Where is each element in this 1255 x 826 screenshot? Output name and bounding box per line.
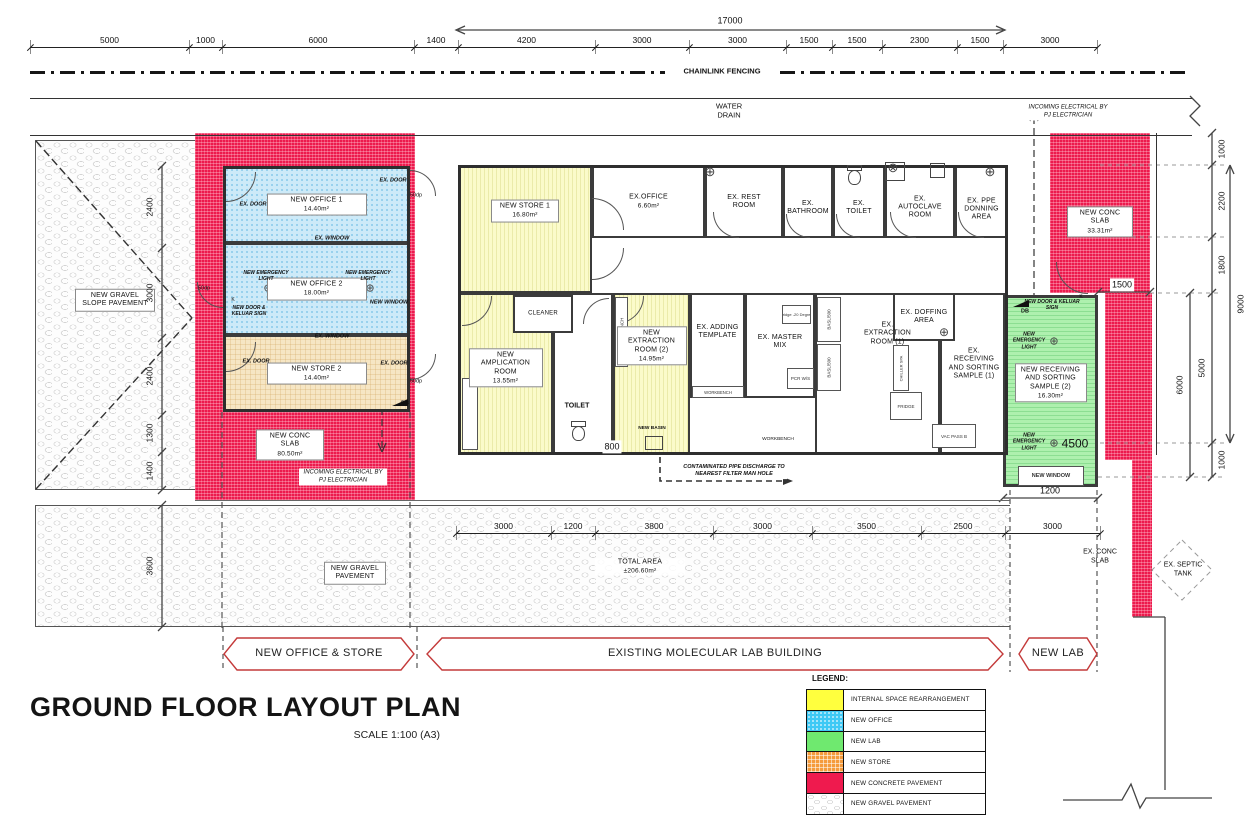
label-k: K [231, 297, 234, 303]
room-new-store1 [458, 165, 592, 293]
legend-swatch-lab [807, 732, 844, 752]
label-contaminated: CONTAMINATED PIPE DISCHARGE TO NEAREST F… [681, 463, 787, 479]
room-label-ex-receiving1: EX. RECEIVING AND SORTING SAMPLE (1) [947, 348, 1001, 381]
toilet-tank [847, 165, 862, 171]
furniture-label: BASL/500 [826, 309, 831, 329]
legend-title: LEGEND: [812, 674, 848, 684]
area-value: 80.50m² [261, 450, 319, 458]
label-ex_door: EX. DOOR [240, 202, 267, 209]
label-ex_door: EX. DOOR [380, 178, 407, 185]
label-4: 1000 [1217, 451, 1228, 470]
furniture-box [462, 378, 478, 450]
room-ex-adding-template [690, 293, 745, 398]
room-label-ex-bathroom: EX. BATHROOM [784, 199, 832, 216]
room-name: EX. TOILET [841, 199, 877, 216]
furniture-box: VAC PASS B [932, 424, 976, 448]
label-ex_window: EX. WINDOW [315, 334, 350, 341]
furniture-box: NEW WINDOW [1018, 466, 1084, 486]
furniture-label: BASL/500 [826, 357, 831, 377]
sink-icon: ⊕ [939, 325, 949, 339]
dim-top-value: 3000 [1041, 35, 1060, 45]
dim-top-value: 1400 [427, 35, 446, 45]
label-ex_door: EX. DOOR [381, 361, 408, 368]
room-label-ex-ppe-donning: EX. PPE DONNING AREA [960, 197, 1004, 222]
label-2: 2400 [145, 367, 156, 386]
label-water_drain: WATER DRAIN [709, 102, 749, 121]
dim-bottom-value: 3800 [643, 521, 666, 531]
room-name: CLEANER [518, 310, 568, 317]
dim-top-value: 4200 [517, 35, 536, 45]
label-4: 1400 [145, 462, 156, 481]
room-name: EX.OFFICE [614, 193, 684, 201]
legend: INTERNAL SPACE REARRANGEMENTNEW OFFICENE… [806, 689, 986, 815]
legend-label: NEW OFFICE [844, 711, 985, 731]
label-ex_window: EX. WINDOW [315, 236, 350, 243]
room-name: EX. REST ROOM [725, 193, 763, 210]
room-label-new-amplication: NEW AMPLICATION ROOM13.55m² [469, 348, 543, 387]
label-db: DB [401, 401, 409, 408]
label-new_emergency_light: NEW EMERGENCY LIGHT [1008, 433, 1050, 452]
furniture-label: Fridge -20 Degree [782, 312, 811, 317]
room-label-new-store2: NEW STORE 214.40m² [267, 362, 367, 385]
label-workbench: WORKBENCH [762, 437, 794, 443]
furniture-label: WORKBENCH [704, 390, 732, 395]
dim-bottom-value: 3000 [492, 521, 515, 531]
dim-top-value: 2300 [910, 35, 929, 45]
label-0: 1000 [1217, 140, 1228, 159]
room-label-new-extraction2: NEW EXTRACTION ROOM (2)14.95m² [617, 326, 687, 365]
label-incoming_elec: INCOMING ELECTRICAL BY PJ ELECTRICIAN [1026, 104, 1110, 121]
site-line-bottom [195, 500, 1010, 501]
label-new_emergency_light: NEW EMERGENCY LIGHT [1008, 332, 1050, 351]
dim-bottom-value: 3000 [751, 521, 774, 531]
dim-top-value: 1000 [196, 35, 215, 45]
label-new_window: NEW WINDOW [370, 300, 409, 307]
label-new_emergency_light: NEW EMERGENCY LIGHT [241, 270, 291, 283]
label-2: 1800 [1217, 256, 1228, 275]
label-1: 3000 [145, 284, 156, 303]
room-name: NEW EXTRACTION ROOM (2) [622, 329, 682, 354]
room-area: 6.60m² [614, 202, 684, 210]
label-3: 1300 [145, 424, 156, 443]
furniture-label: CHILLER SPA [899, 355, 904, 381]
room-label-cleaner: CLEANER [518, 310, 568, 317]
legend-label: NEW STORE [844, 752, 985, 772]
legend-label: NEW LAB [844, 732, 985, 752]
room-name: NEW AMPLICATION ROOM [474, 351, 538, 376]
label-right_9000: 9000 [1236, 295, 1247, 314]
room-name: EX. MASTER MIX [751, 333, 809, 350]
label-new_basin: NEW BASIN [638, 426, 665, 432]
area-name: NEW CONC SLAB [1072, 209, 1128, 226]
area-label-conc-slab-right: NEW CONC SLAB33.31m² [1067, 206, 1133, 237]
label-toilet: TOILET [565, 403, 590, 412]
label-1: 2200 [1217, 192, 1228, 211]
emergency-light-icon: ⊕ [1049, 335, 1058, 348]
floor-plan-canvas: NEW OFFICE & STORE EXISTING MOLECULAR LA… [0, 0, 1255, 826]
area-name: NEW GRAVEL PAVEMENT [329, 565, 381, 582]
dim-top-value: 1500 [800, 35, 819, 45]
gravel-slope-area [35, 140, 195, 490]
room-label-ex-rest-room: EX. REST ROOM [725, 193, 763, 210]
label-db: DB [1021, 309, 1029, 316]
room-area: 14.40m² [272, 205, 362, 213]
room-label-new-office1: NEW OFFICE 114.40m² [267, 193, 367, 216]
area-name: NEW CONC SLAB [261, 432, 319, 449]
banner-office-store: NEW OFFICE & STORE [223, 647, 415, 659]
dim-bottom-value: 2500 [952, 521, 975, 531]
furniture-label: PCR W/S [791, 376, 810, 381]
legend-label: NEW CONCRETE PAVEMENT [844, 773, 985, 793]
area-label-gravel-slope: NEW GRAVEL SLOPE PAVEMENT [75, 289, 155, 312]
site-edge-right [1156, 133, 1157, 455]
autoclave-box [885, 162, 905, 181]
room-label-ex-autoclave: EX. AUTOCLAVE ROOM [892, 195, 948, 220]
furniture-box: PCR W/S [787, 368, 814, 389]
legend-swatch-yellow [807, 690, 844, 710]
room-name: EX. PPE DONNING AREA [960, 197, 1004, 222]
banner-existing: EXISTING MOLECULAR LAB BUILDING [426, 647, 1004, 659]
label-dp50: 50dp [410, 379, 422, 386]
legend-swatch-red [807, 773, 844, 793]
toilet-tank [571, 421, 586, 427]
legend-row: NEW OFFICE [807, 710, 985, 731]
emergency-light-icon: ⊕ [1049, 437, 1058, 450]
dim-top-value: 1500 [848, 35, 867, 45]
room-label-ex-adding-template: EX. ADDING TEMPLATE [695, 323, 741, 340]
room-area: 18.00m² [272, 290, 362, 298]
room-name: NEW STORE 2 [272, 365, 362, 373]
label-new_emergency_light: NEW EMERGENCY LIGHT [343, 270, 393, 283]
furniture-label: NEW WINDOW [1032, 473, 1071, 479]
label-new_door_keluar: NEW DOOR & KELUAR SIGN [222, 305, 276, 318]
label-d1200: 1200 [1040, 485, 1060, 496]
area-label-conc-slab-left: NEW CONC SLAB80.50m² [256, 429, 324, 460]
label-incoming_elec: INCOMING ELECTRICAL BY PJ ELECTRICIAN [299, 469, 387, 486]
label-ex_conc_slab: EX. CONC SLAB [1077, 548, 1123, 566]
room-label-new-store1: NEW STORE 116.80m² [491, 200, 559, 223]
label-left_lower: 3600 [145, 557, 156, 576]
room-name: EX. BATHROOM [784, 199, 832, 216]
room-area: 14.95m² [622, 355, 682, 363]
room-name: EX. ADDING TEMPLATE [695, 323, 741, 340]
label-0: 2400 [145, 198, 156, 217]
area-label-total-area: TOTAL AREA±206.60m² [595, 559, 685, 576]
ppe-box [930, 163, 945, 178]
label-3: 5000 [1197, 359, 1208, 378]
area-value: ±206.60m² [595, 568, 685, 576]
furniture-box: CHILLER SPA [893, 345, 909, 391]
room-name: EX. AUTOCLAVE ROOM [892, 195, 948, 220]
emergency-light-icon: ⊕ [365, 282, 374, 295]
room-name: EX. DOFFING AREA [899, 309, 949, 326]
furniture-box: FRIDGE [890, 392, 922, 420]
room-label-ex-doffing: EX. DOFFING AREA [899, 309, 949, 326]
area-name: TOTAL AREA [595, 559, 685, 567]
door-arc [410, 354, 436, 380]
dim-bottom-value: 3000 [1041, 521, 1064, 531]
label-ex_septic: EX. SEPTIC TANK [1163, 561, 1203, 579]
room-area: 16.80m² [496, 212, 554, 220]
room-label-ex-office: EX.OFFICE6.60m² [614, 193, 684, 210]
area-name: NEW GRAVEL SLOPE PAVEMENT [80, 292, 150, 309]
area-label-gravel-pavement: NEW GRAVEL PAVEMENT [324, 562, 386, 585]
label-chainlink: CHAINLINK FENCING [665, 65, 779, 76]
new-concrete-pavement-septic-strip [1132, 460, 1152, 617]
room-label-ex-extraction1: EX. EXTRACTION ROOM (1) [858, 322, 918, 347]
room-area: 13.55m² [474, 377, 538, 385]
room-name: NEW RECEIVING AND SORTING SAMPLE (2) [1020, 366, 1082, 391]
dim-top-value: 5000 [100, 35, 119, 45]
legend-swatch-store [807, 752, 844, 772]
furniture-label: VAC PASS B [941, 434, 967, 439]
legend-row: INTERNAL SPACE REARRANGEMENT [807, 690, 985, 710]
dim-top-value: 1500 [971, 35, 990, 45]
label-d1500: 1500 [1110, 278, 1134, 291]
dim-bottom-value: 3500 [855, 521, 878, 531]
room-name: EX. EXTRACTION ROOM (1) [858, 322, 918, 347]
furniture-label: FRIDGE [897, 404, 914, 409]
room-area: 16.30m² [1020, 392, 1082, 400]
label-d4500: 4500 [1062, 437, 1089, 452]
banner-new-lab: NEW LAB [1018, 647, 1098, 659]
sink-icon: ⊕ [705, 164, 716, 180]
page-title: GROUND FLOOR LAYOUT PLAN [30, 692, 461, 723]
legend-row: NEW STORE [807, 751, 985, 772]
water-drain-channel [30, 98, 1192, 136]
dim-top-value: 6000 [309, 35, 328, 45]
label-k: K [1079, 294, 1082, 300]
label-dp50: 50dp [198, 286, 210, 293]
sink-icon: ⊕ [985, 164, 996, 180]
legend-row: NEW GRAVEL PAVEMENT [807, 793, 985, 814]
room-name: EX. RECEIVING AND SORTING SAMPLE (1) [947, 348, 1001, 381]
furniture-box: BASL/500 [817, 344, 841, 391]
label-d17000: 17000 [717, 15, 742, 26]
furniture-box: WORKBENCH [692, 386, 744, 398]
furniture-box: Fridge -20 Degree [782, 305, 811, 324]
dim-bottom-value: 1200 [562, 521, 585, 531]
basin-icon [645, 436, 663, 450]
legend-row: NEW LAB [807, 731, 985, 752]
room-area: 14.40m² [272, 374, 362, 382]
label-ex_door: EX. DOOR [243, 359, 270, 366]
legend-swatch-gravel [807, 794, 844, 814]
toilet-icon [848, 170, 861, 185]
room-label-ex-toilet: EX. TOILET [841, 199, 877, 216]
room-label-new-receiving2: NEW RECEIVING AND SORTING SAMPLE (2)16.3… [1015, 363, 1087, 402]
legend-label: NEW GRAVEL PAVEMENT [844, 794, 985, 814]
new-concrete-pavement-right [1105, 293, 1152, 460]
label-d800: 800 [602, 440, 621, 453]
room-name: NEW STORE 1 [496, 203, 554, 211]
room-name: NEW OFFICE 1 [272, 196, 362, 204]
legend-swatch-office [807, 711, 844, 731]
chainlink-fence-line [30, 71, 1190, 74]
legend-row: NEW CONCRETE PAVEMENT [807, 772, 985, 793]
toilet-icon [572, 426, 585, 441]
label-right_6000: 6000 [1175, 376, 1186, 395]
furniture-box: BASL/500 [817, 297, 841, 342]
page-title-scale: SCALE 1:100 (A3) [140, 729, 440, 741]
label-dp50: 50dp [410, 193, 422, 200]
dim-top-value: 3000 [633, 35, 652, 45]
area-value: 33.31m² [1072, 227, 1128, 235]
legend-label: INTERNAL SPACE REARRANGEMENT [844, 690, 985, 710]
room-label-ex-master-mix: EX. MASTER MIX [751, 333, 809, 350]
dim-top-value: 3000 [728, 35, 747, 45]
